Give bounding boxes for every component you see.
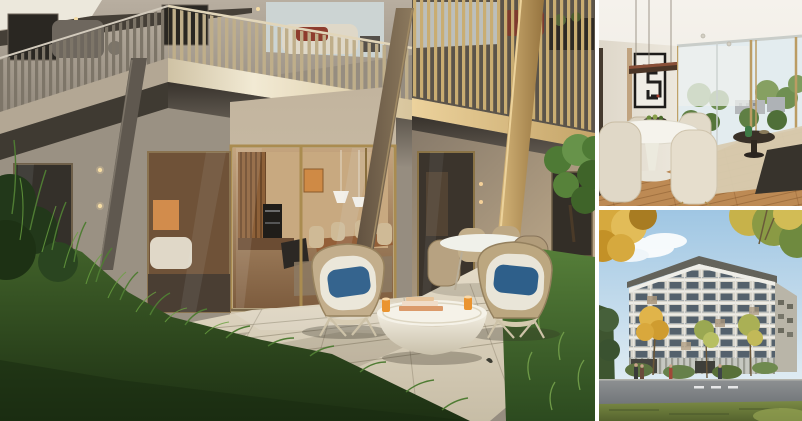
photo-collage [0,0,802,421]
ceiling-light [727,42,731,46]
dining-chair [599,122,641,202]
blue-cushion [493,264,540,296]
green-vase [745,126,752,137]
coffee-table [377,296,493,366]
dining-chair [671,130,717,204]
lawn [599,401,802,421]
photo-terrace-exterior [0,0,595,421]
abstract-artwork [635,54,665,107]
building-exterior-art [599,210,802,421]
street [599,379,802,404]
dining-interior-art [599,0,802,206]
terrace-exterior-art [0,0,595,421]
ceiling-light [701,34,705,38]
interior-artwork [304,169,323,192]
photo-dining-interior [599,0,802,206]
photo-building-exterior [599,210,802,421]
